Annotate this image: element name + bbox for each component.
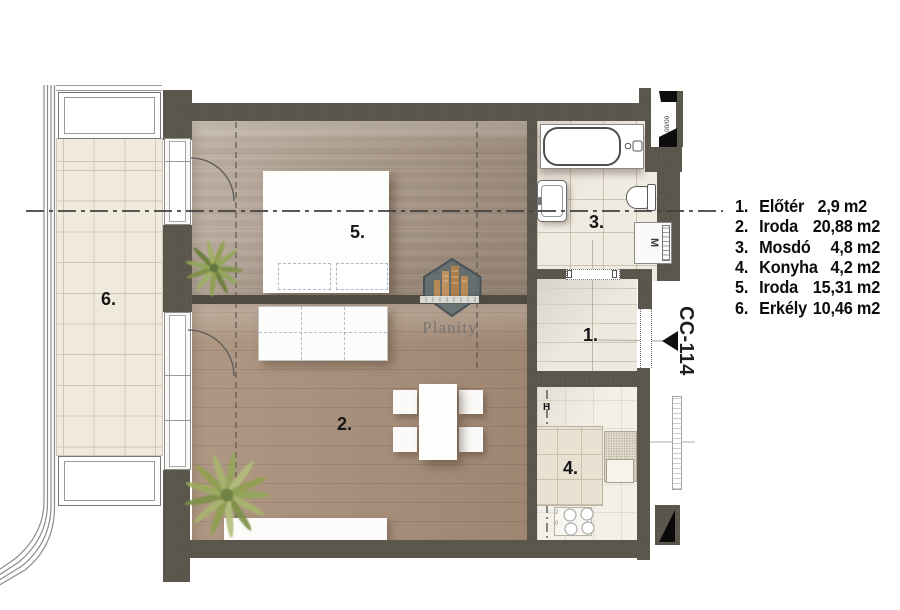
- svg-text:2: 2: [555, 510, 559, 516]
- svg-text:M: M: [648, 238, 660, 247]
- svg-text:0: 0: [555, 521, 559, 527]
- svg-text:CC-114: CC-114: [675, 306, 697, 376]
- svg-text:00/00: 00/00: [664, 115, 671, 132]
